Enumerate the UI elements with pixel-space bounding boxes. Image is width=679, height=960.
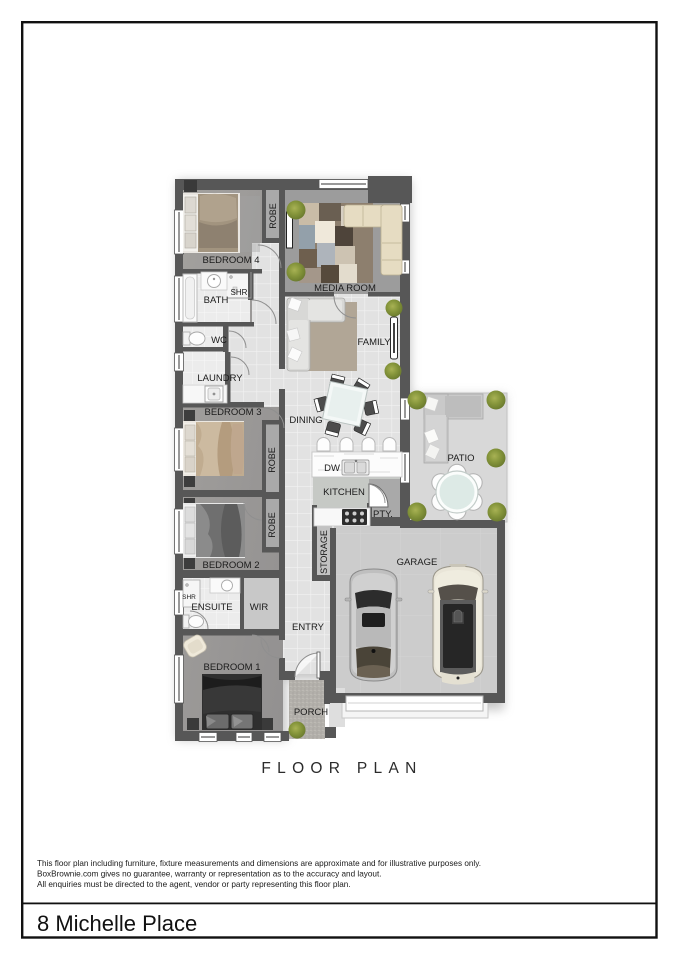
svg-text:KITCHEN: KITCHEN	[323, 487, 365, 498]
svg-text:BEDROOM 4: BEDROOM 4	[202, 255, 259, 266]
svg-text:DW: DW	[324, 463, 340, 474]
svg-text:ROBE: ROBE	[268, 203, 278, 229]
svg-text:WC: WC	[211, 335, 227, 346]
svg-text:SHR: SHR	[182, 594, 196, 601]
svg-text:ENTRY: ENTRY	[292, 622, 325, 633]
svg-text:DINING: DINING	[289, 415, 322, 426]
svg-text:STORAGE: STORAGE	[319, 530, 329, 574]
svg-text:BEDROOM 2: BEDROOM 2	[202, 560, 259, 571]
svg-text:PTY.: PTY.	[373, 509, 393, 520]
svg-text:8 Michelle Place: 8 Michelle Place	[37, 911, 197, 936]
svg-text:ROBE: ROBE	[267, 447, 277, 473]
svg-text:BATH: BATH	[204, 295, 229, 306]
svg-text:BEDROOM 1: BEDROOM 1	[203, 662, 260, 673]
svg-text:This floor plan including furn: This floor plan including furniture, fix…	[37, 859, 481, 868]
svg-text:SHR: SHR	[231, 288, 248, 297]
svg-text:PORCH: PORCH	[294, 707, 328, 718]
svg-text:ROBE: ROBE	[267, 512, 277, 538]
svg-text:BEDROOM 3: BEDROOM 3	[204, 407, 261, 418]
svg-text:ENSUITE: ENSUITE	[191, 602, 232, 613]
svg-text:WIR: WIR	[250, 602, 269, 613]
svg-text:LAUNDRY: LAUNDRY	[197, 373, 243, 384]
svg-text:MEDIA ROOM: MEDIA ROOM	[314, 283, 376, 294]
svg-text:FLOOR PLAN: FLOOR PLAN	[261, 760, 422, 777]
svg-text:GARAGE: GARAGE	[397, 557, 438, 568]
svg-text:FAMILY: FAMILY	[357, 337, 391, 348]
svg-text:All enquiries must be directed: All enquiries must be directed to the ag…	[37, 880, 351, 889]
svg-text:BoxBrownie.com gives no guaran: BoxBrownie.com gives no guarantee, warra…	[37, 870, 382, 879]
svg-text:PATIO: PATIO	[447, 453, 474, 464]
